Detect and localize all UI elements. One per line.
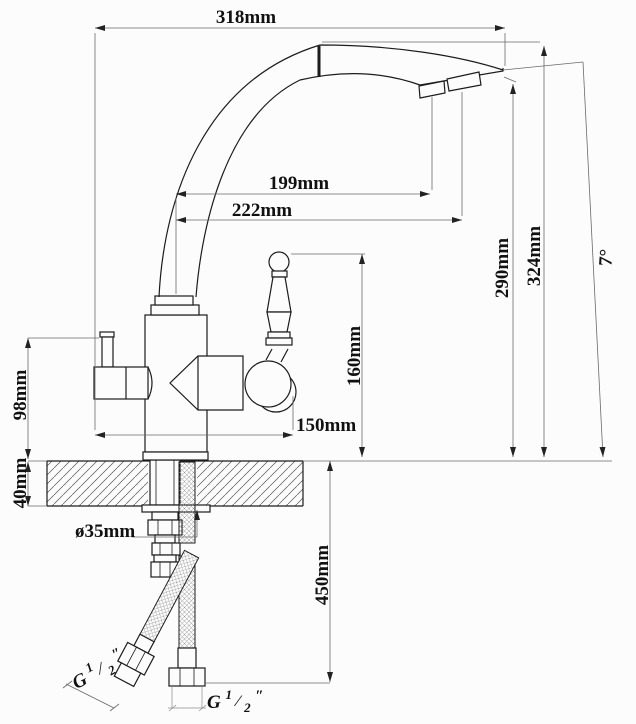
thread-left-num: 1 <box>83 659 96 675</box>
dim-label-40: 40mm <box>10 458 31 509</box>
dim-label-199: 199mm <box>269 173 329 194</box>
drawing-canvas: 318mm 199mm 222mm 290mm 324mm 7° 160mm 1… <box>0 0 636 724</box>
dim-side-handle-height-98 <box>28 338 99 459</box>
dim-label-98: 98mm <box>10 370 31 421</box>
dim-reach-222 <box>176 92 462 220</box>
hose-fitting-bottom <box>168 648 206 711</box>
aerator-part-inner <box>419 81 445 98</box>
thread-bottom-den: 2 <box>243 700 251 715</box>
aerator-part-outer <box>447 72 481 91</box>
thread-bottom-g: G <box>207 692 221 713</box>
side-handle <box>94 332 152 399</box>
dim-label-290: 290mm <box>492 238 513 298</box>
spray-knob <box>245 361 296 412</box>
dim-label-7deg: 7° <box>595 248 617 267</box>
dim-label-318: 318mm <box>216 7 276 28</box>
filter-handle <box>266 252 292 362</box>
dim-label-150: 150mm <box>296 415 356 436</box>
thread-left-slash: ⁄ <box>93 659 109 678</box>
thread-bottom-slash: ⁄ <box>234 693 243 710</box>
dim-label-222: 222mm <box>232 200 292 221</box>
thread-bottom-num: 1 <box>225 687 232 702</box>
dim-tilt-angle-7 <box>503 62 603 457</box>
dim-label-thread-bottom: G 1 ⁄ 2 ″ <box>207 683 264 717</box>
dim-label-160: 160mm <box>344 326 365 386</box>
dim-label-324: 324mm <box>524 226 545 286</box>
dim-label-450: 450mm <box>312 545 333 605</box>
thread-bottom-unit: ″ <box>255 688 263 704</box>
faucet-technical-drawing: 318mm 199mm 222mm 290mm 324mm 7° 160mm 1… <box>0 0 636 724</box>
dim-label-dia35: ø35mm <box>75 521 135 542</box>
spout-outline <box>159 45 503 297</box>
